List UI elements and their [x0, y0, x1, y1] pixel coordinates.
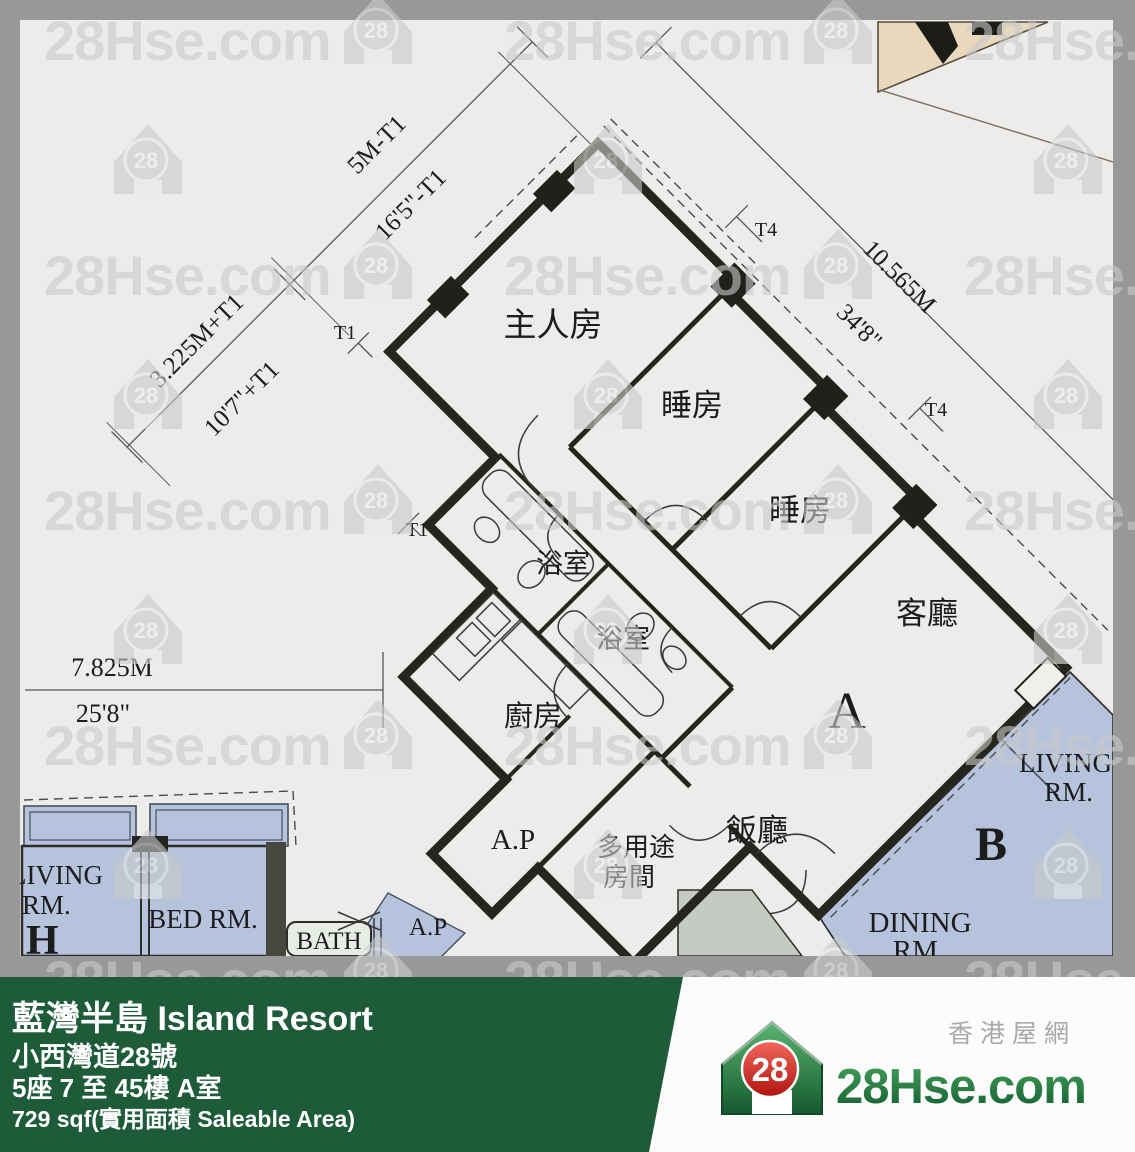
logo-number: 28 — [752, 1051, 789, 1088]
estate-title: 藍灣半島 Island Resort — [12, 1000, 373, 1038]
footer: 藍灣半島 Island Resort 小西灣道28號 5座 7 至 45樓 A室… — [0, 977, 1135, 1152]
estate-address: 小西灣道28號 — [12, 1041, 177, 1072]
watermark-overlay — [0, 0, 1135, 977]
floorplan-image: 28Hse.com 28 28 — [0, 0, 1135, 1152]
estate-area: 729 sqf(實用面積 Saleable Area) — [12, 1106, 355, 1132]
site-name-chinese: 香港屋網 — [948, 1020, 1076, 1048]
site-name: 28Hse.com — [836, 1060, 1086, 1114]
estate-block-floor-unit: 5座 7 至 45樓 A室 — [12, 1073, 222, 1103]
floorplan-svg: 28Hse.com 28 28 — [0, 0, 1135, 1152]
